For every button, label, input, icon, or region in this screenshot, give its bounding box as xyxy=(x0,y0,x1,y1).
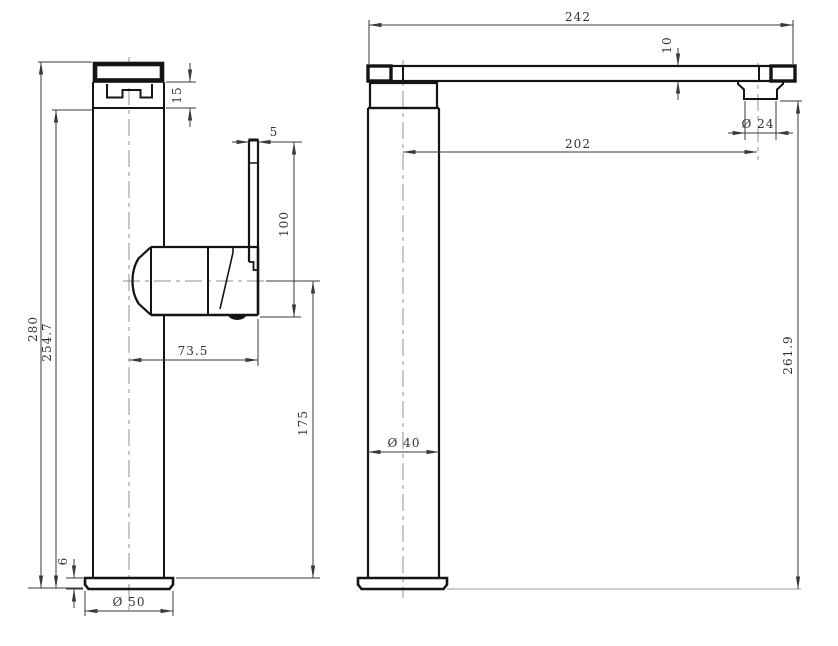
side-view-centerlines xyxy=(123,57,266,613)
label-cap-height: 15 xyxy=(170,86,184,103)
dim-base-thickness xyxy=(66,559,83,608)
label-overall-height: 280 xyxy=(26,316,40,342)
label-spout-bar-thickness: 10 xyxy=(660,36,674,53)
label-base-thickness: 6 xyxy=(56,557,70,566)
label-outlet-height: 261.9 xyxy=(781,335,795,374)
dim-spout-height xyxy=(52,110,92,588)
spout-bar xyxy=(368,66,795,81)
cap-top-band xyxy=(95,64,162,81)
side-view-dim-labels: 280 254.7 15 5 100 175 73.5 6 Ø 50 xyxy=(26,86,310,609)
lever-foot xyxy=(249,262,258,270)
label-lever-length: 100 xyxy=(277,211,291,237)
label-column-diameter: Ø 40 xyxy=(388,436,421,450)
label-overall-width: 242 xyxy=(565,10,591,24)
label-body-center-height: 175 xyxy=(296,410,310,436)
dim-handle-reach xyxy=(129,319,258,366)
aerator-outlet xyxy=(738,81,783,99)
label-spout-reach: 202 xyxy=(565,137,591,151)
dim-overall-width xyxy=(369,20,793,64)
outlet-spout-arc xyxy=(228,315,247,320)
side-view xyxy=(85,57,266,613)
mixer-body xyxy=(133,247,259,320)
technical-drawing-canvas: 280 254.7 15 5 100 175 73.5 6 Ø 50 xyxy=(0,0,838,646)
front-view-dimensions xyxy=(368,20,802,589)
label-spout-height: 254.7 xyxy=(40,322,54,361)
side-view-dimensions xyxy=(28,62,320,616)
label-lever-thickness: 5 xyxy=(270,125,279,139)
faucet-technical-drawing: 280 254.7 15 5 100 175 73.5 6 Ø 50 xyxy=(0,0,838,646)
label-base-diameter: Ø 50 xyxy=(113,595,146,609)
label-handle-reach: 73.5 xyxy=(178,344,209,358)
label-outlet-diameter: Ø 24 xyxy=(742,117,775,131)
